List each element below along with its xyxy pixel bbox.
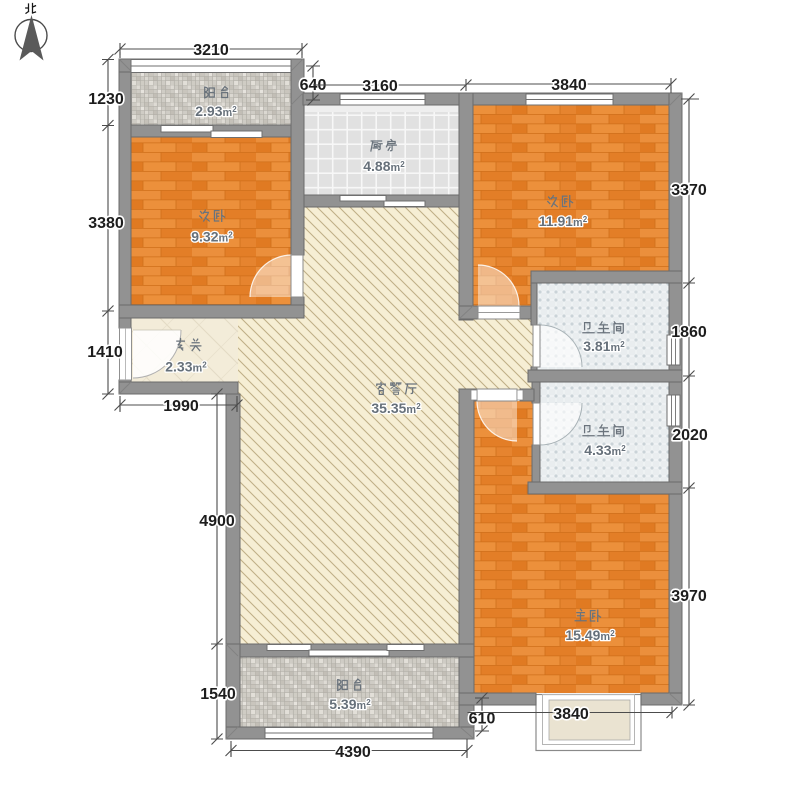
svg-text:1860: 1860	[671, 324, 707, 341]
svg-text:3210: 3210	[193, 42, 229, 59]
svg-text:4390: 4390	[335, 744, 371, 761]
svg-text:1410: 1410	[87, 344, 123, 361]
svg-text:1540: 1540	[200, 686, 236, 703]
svg-text:1230: 1230	[88, 91, 124, 108]
svg-text:3970: 3970	[671, 588, 707, 605]
svg-text:3840: 3840	[551, 77, 587, 94]
svg-text:4900: 4900	[199, 513, 235, 530]
svg-text:2020: 2020	[672, 427, 708, 444]
svg-text:3840: 3840	[553, 706, 589, 723]
svg-text:3370: 3370	[671, 182, 707, 199]
svg-text:3380: 3380	[88, 215, 124, 232]
svg-text:3160: 3160	[362, 78, 398, 95]
svg-text:1990: 1990	[163, 398, 199, 415]
